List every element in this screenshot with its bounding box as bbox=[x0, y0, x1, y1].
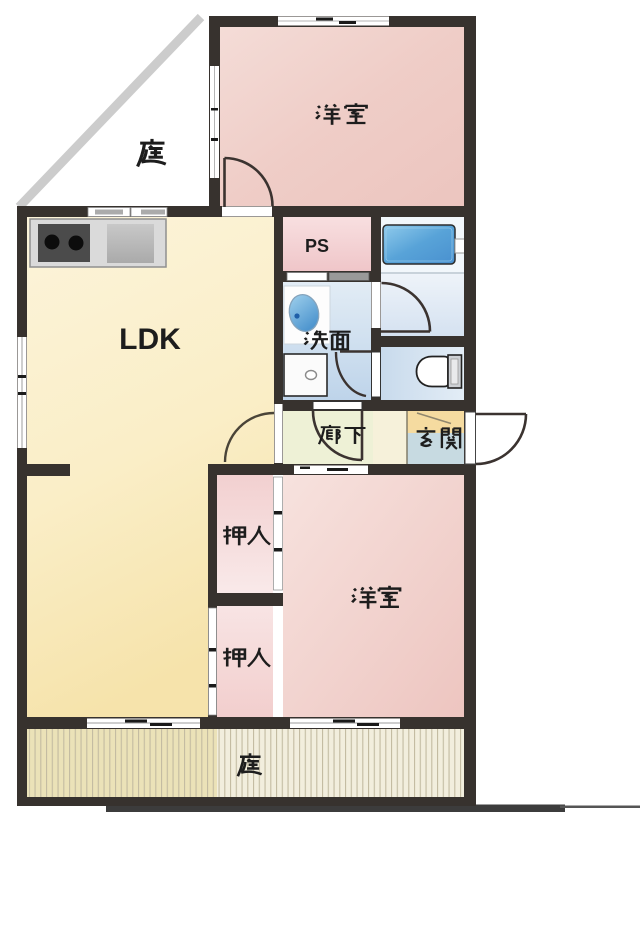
svg-text:PS: PS bbox=[305, 236, 329, 256]
svg-text:LDK: LDK bbox=[119, 323, 181, 356]
